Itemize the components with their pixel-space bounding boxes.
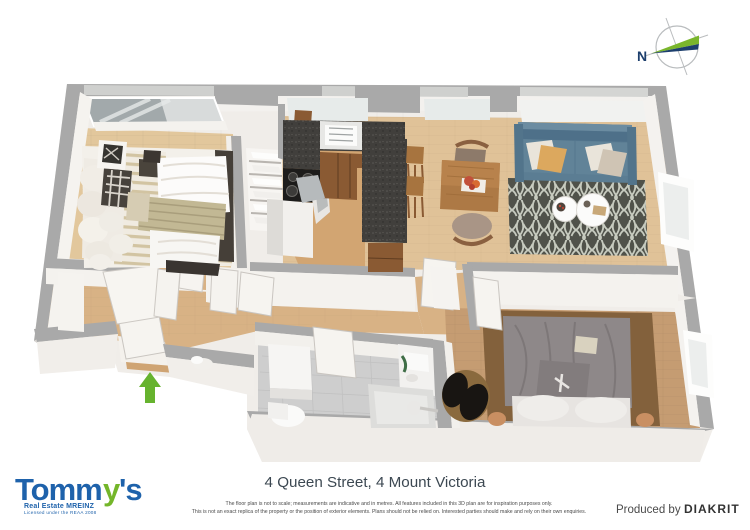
svg-text:Real Estate MREINZ: Real Estate MREINZ xyxy=(24,503,95,510)
svg-text:DIAKRIT: DIAKRIT xyxy=(684,502,740,516)
svg-text:N: N xyxy=(637,48,647,64)
svg-text:Tomm: Tomm xyxy=(15,472,102,507)
svg-text:Produced by: Produced by xyxy=(616,504,681,516)
svg-text:'s: 's xyxy=(119,472,142,507)
svg-text:This is not an exact replica o: This is not an exact replica of the prop… xyxy=(192,509,586,515)
svg-text:Licensed under the REAA 2008: Licensed under the REAA 2008 xyxy=(24,510,97,515)
svg-text:The floor plan is not to scale: The floor plan is not to scale; measurem… xyxy=(226,501,553,507)
svg-text:4 Queen Street, 4 Mount Victor: 4 Queen Street, 4 Mount Victoria xyxy=(265,474,486,491)
